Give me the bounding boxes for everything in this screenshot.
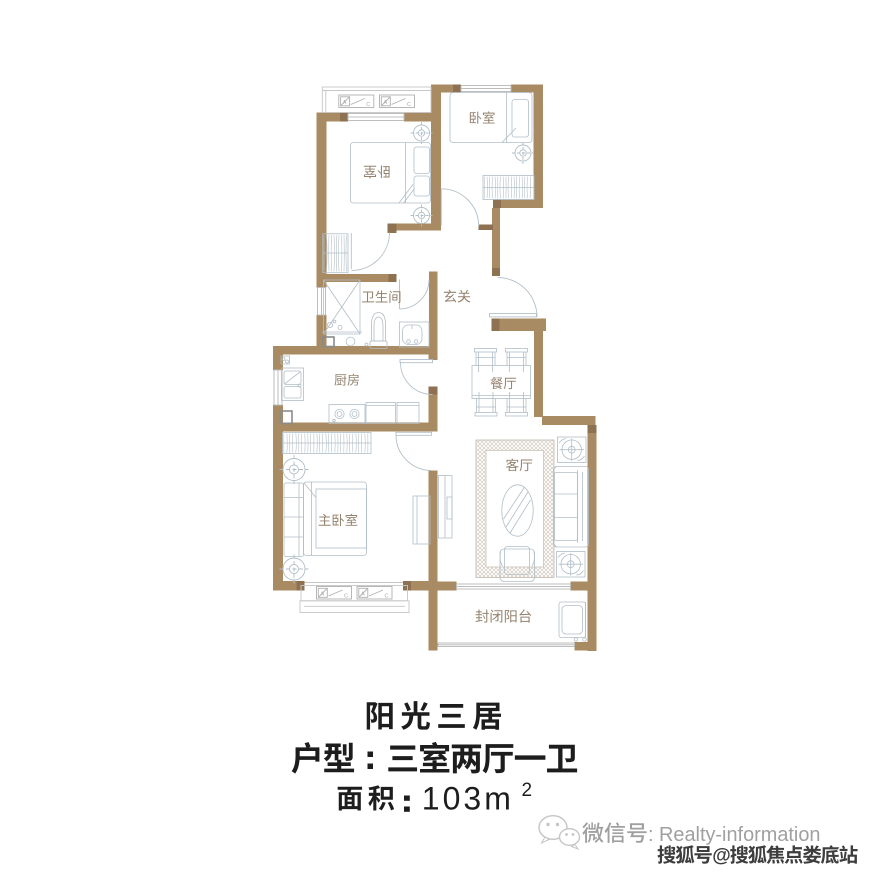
svg-text:@: @	[712, 846, 731, 867]
svg-text:103m: 103m	[422, 781, 514, 817]
svg-text:2: 2	[522, 780, 533, 801]
svg-text:: Realty-information: : Realty-information	[648, 824, 820, 846]
